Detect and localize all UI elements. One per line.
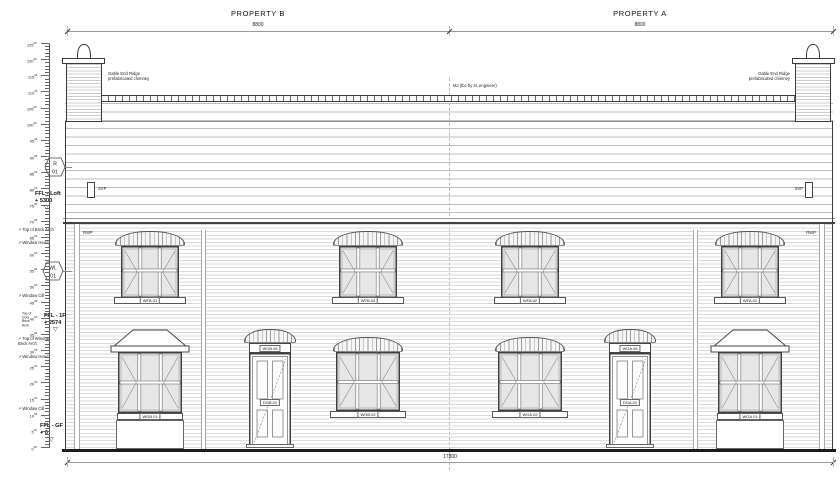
door-threshold bbox=[606, 444, 654, 448]
scale-tick bbox=[41, 415, 50, 416]
scale-tick bbox=[45, 111, 50, 112]
svp-label-left: SVP bbox=[98, 186, 106, 191]
scale-tick bbox=[45, 441, 50, 442]
dim-bottom-value: 17800 bbox=[400, 454, 500, 460]
chimney-note-left: Gable End Ridge prefabricated chimney bbox=[108, 71, 178, 81]
scale-label: 10000 bbox=[27, 122, 37, 128]
window-glazing bbox=[498, 352, 562, 411]
scale-label: 9000 bbox=[29, 154, 37, 160]
scale-tick bbox=[45, 260, 50, 261]
chimney-left bbox=[66, 63, 102, 122]
gf-window bbox=[498, 352, 562, 411]
scale-tick bbox=[45, 324, 50, 325]
svp-pipe-left bbox=[87, 182, 95, 198]
scale-label: 2000 bbox=[29, 380, 37, 386]
scale-tick bbox=[45, 428, 50, 429]
scale-label: 3500 bbox=[29, 332, 37, 338]
scale-tick bbox=[45, 66, 50, 67]
scale-tick bbox=[41, 188, 50, 189]
scale-tick bbox=[45, 53, 50, 54]
scale-tick bbox=[45, 234, 50, 235]
scale-tick bbox=[45, 444, 50, 445]
scale-tick bbox=[45, 211, 50, 212]
opening-label: WFA.01 bbox=[740, 297, 760, 304]
scale-tick bbox=[41, 59, 50, 60]
scale-tick bbox=[45, 263, 50, 264]
window-glazing bbox=[121, 246, 179, 298]
scale-tick bbox=[41, 399, 50, 400]
svg-text:WL: WL bbox=[49, 266, 57, 272]
scale-tick bbox=[45, 227, 50, 228]
scale-tick bbox=[45, 256, 50, 257]
scale-tick bbox=[45, 344, 50, 345]
ground-line bbox=[62, 449, 836, 452]
scale-tick bbox=[45, 379, 50, 380]
scale-label: 500 bbox=[32, 429, 37, 435]
dim-ext bbox=[833, 457, 834, 467]
dim-ext bbox=[67, 457, 68, 467]
scale-tick bbox=[45, 363, 50, 364]
scale-tick bbox=[45, 163, 50, 164]
tag-leader bbox=[64, 167, 72, 168]
scale-tick bbox=[45, 127, 50, 128]
svg-text:01: 01 bbox=[50, 274, 56, 280]
window-glazing bbox=[721, 246, 779, 298]
scale-label: 6000 bbox=[29, 251, 37, 257]
bay-apron-panel bbox=[716, 420, 784, 449]
ff-window bbox=[721, 246, 779, 298]
scale-tick bbox=[45, 243, 50, 244]
scale-tick bbox=[41, 382, 50, 383]
door-threshold bbox=[246, 444, 294, 448]
scale-tick bbox=[45, 386, 50, 387]
scale-tick bbox=[45, 295, 50, 296]
scale-tick bbox=[41, 237, 50, 238]
scale-tick bbox=[45, 289, 50, 290]
vertical-scale-bar: 1250012000115001100010500100009500900085… bbox=[18, 43, 50, 449]
scale-tick bbox=[45, 182, 50, 183]
scale-tick bbox=[45, 218, 50, 219]
scale-tick bbox=[45, 101, 50, 102]
scale-tick bbox=[45, 369, 50, 370]
scale-tick bbox=[45, 402, 50, 403]
scale-tick bbox=[45, 79, 50, 80]
scale-tick bbox=[45, 72, 50, 73]
scale-tick bbox=[41, 431, 50, 432]
scale-tick bbox=[45, 56, 50, 57]
svg-text:01: 01 bbox=[52, 170, 58, 176]
scale-tick bbox=[45, 224, 50, 225]
tag-leader bbox=[62, 271, 72, 272]
window-glazing bbox=[336, 352, 400, 411]
opening-label: WGB.02 bbox=[357, 411, 378, 418]
scale-tick bbox=[45, 424, 50, 425]
scale-tick bbox=[45, 166, 50, 167]
scale-tick bbox=[45, 437, 50, 438]
scale-tick bbox=[45, 331, 50, 332]
scale-tick bbox=[45, 85, 50, 86]
scale-label: 000 bbox=[32, 445, 37, 451]
scale-tick bbox=[45, 298, 50, 299]
bay-canopy bbox=[110, 327, 190, 353]
property-a-title: PROPERTY A bbox=[560, 9, 720, 18]
scale-tick bbox=[41, 253, 50, 254]
scale-tick bbox=[45, 169, 50, 170]
scale-tick bbox=[45, 327, 50, 328]
svg-text:R: R bbox=[53, 162, 57, 168]
ffl-1f-marker-icon: ▽ bbox=[53, 327, 58, 333]
scale-tick bbox=[45, 159, 50, 160]
scale-tick bbox=[45, 146, 50, 147]
scale-tick bbox=[45, 98, 50, 99]
opening-label: WGA.02 bbox=[519, 411, 540, 418]
roof-band-line bbox=[65, 121, 833, 122]
scale-tick bbox=[45, 198, 50, 199]
rwp-label-left: RWP bbox=[83, 230, 93, 235]
scale-tick bbox=[41, 156, 50, 157]
scale-tick bbox=[45, 185, 50, 186]
scale-tick bbox=[45, 266, 50, 267]
elevation-drawing: PROPERTY B PROPERTY A 8800 8800 MJ (tbc … bbox=[0, 0, 840, 480]
bay-canopy bbox=[710, 327, 790, 353]
scale-tick bbox=[45, 88, 50, 89]
scale-tick bbox=[45, 279, 50, 280]
ff-window bbox=[121, 246, 179, 298]
scale-tick bbox=[45, 347, 50, 348]
downpipe-mid-left bbox=[201, 230, 206, 450]
scale-tick bbox=[45, 104, 50, 105]
scale-tick bbox=[45, 376, 50, 377]
opening-label: WGA.01 bbox=[739, 413, 760, 420]
scale-tick bbox=[45, 276, 50, 277]
scale-label: 11000 bbox=[27, 89, 37, 95]
scale-label: 8500 bbox=[29, 170, 37, 176]
opening-label: WFB.02 bbox=[358, 297, 378, 304]
scale-tick bbox=[45, 192, 50, 193]
scale-tick bbox=[45, 114, 50, 115]
scale-label: 5500 bbox=[29, 267, 37, 273]
scale-tick bbox=[45, 282, 50, 283]
scale-tick bbox=[41, 75, 50, 76]
scale-tick bbox=[45, 130, 50, 131]
scale-tick bbox=[45, 305, 50, 306]
scale-tick bbox=[45, 117, 50, 118]
scale-tick bbox=[45, 95, 50, 96]
scale-tick bbox=[41, 124, 50, 125]
opening-label: WGA.05 bbox=[619, 345, 640, 352]
scale-tick bbox=[41, 91, 50, 92]
scale-tick bbox=[45, 201, 50, 202]
scale-tick bbox=[45, 314, 50, 315]
scale-tick bbox=[45, 272, 50, 273]
scale-tick bbox=[45, 321, 50, 322]
scale-tick bbox=[41, 269, 50, 270]
scale-label: 7000 bbox=[29, 219, 37, 225]
scale-label: 4500 bbox=[29, 299, 37, 305]
rwp-downpipe-right bbox=[819, 224, 825, 450]
scale-label: 11500 bbox=[27, 73, 37, 79]
scale-tick bbox=[41, 350, 50, 351]
scale-tick bbox=[45, 389, 50, 390]
bay-canopy-roof bbox=[710, 327, 790, 353]
window-glazing bbox=[501, 246, 559, 298]
scale-label: 9500 bbox=[29, 138, 37, 144]
dim-bottom-line bbox=[67, 462, 833, 463]
scale-tick bbox=[45, 353, 50, 354]
bay-canopy-roof bbox=[110, 327, 190, 353]
scale-tick bbox=[45, 250, 50, 251]
scale-tick bbox=[41, 221, 50, 222]
scale-tick bbox=[41, 43, 50, 44]
window-glazing bbox=[718, 352, 782, 413]
scale-tick bbox=[41, 108, 50, 109]
scale-tick bbox=[45, 373, 50, 374]
bay-window bbox=[718, 352, 782, 413]
window-glazing bbox=[339, 246, 397, 298]
scale-tick bbox=[45, 69, 50, 70]
scale-tick bbox=[45, 214, 50, 215]
chimney-right bbox=[795, 63, 831, 122]
scale-label: 7500 bbox=[29, 202, 37, 208]
scale-tick bbox=[45, 408, 50, 409]
scale-tick bbox=[45, 153, 50, 154]
scale-label: 4000 bbox=[29, 315, 37, 321]
scale-tick bbox=[45, 405, 50, 406]
scale-tick bbox=[45, 179, 50, 180]
property-b-title: PROPERTY B bbox=[178, 9, 338, 18]
chimney-pot-right bbox=[806, 44, 820, 59]
downpipe-mid-right bbox=[693, 230, 698, 450]
svp-label-right: SVP bbox=[768, 186, 803, 191]
scale-tick bbox=[45, 176, 50, 177]
scale-tick bbox=[41, 205, 50, 206]
scale-tick bbox=[45, 434, 50, 435]
gf-window bbox=[336, 352, 400, 411]
scale-tick bbox=[41, 302, 50, 303]
scale-tick bbox=[45, 247, 50, 248]
scale-tick bbox=[45, 137, 50, 138]
bay-window bbox=[118, 352, 182, 413]
rwp-downpipe-left bbox=[74, 224, 80, 450]
svp-pipe-right bbox=[805, 182, 813, 198]
scale-tick bbox=[45, 49, 50, 50]
scale-tick bbox=[41, 366, 50, 367]
scale-tick bbox=[45, 195, 50, 196]
scale-tick bbox=[45, 121, 50, 122]
scale-tick bbox=[45, 308, 50, 309]
scale-tick bbox=[41, 140, 50, 141]
opening-label: WGB.05 bbox=[259, 345, 280, 352]
scale-tick bbox=[45, 143, 50, 144]
scale-tick bbox=[45, 418, 50, 419]
chimney-pot-left bbox=[77, 44, 91, 59]
opening-label: WFB.01 bbox=[140, 297, 160, 304]
scale-tick bbox=[45, 340, 50, 341]
scale-tick bbox=[45, 392, 50, 393]
scale-label: 6500 bbox=[29, 235, 37, 241]
scale-tick bbox=[45, 46, 50, 47]
ff-window bbox=[339, 246, 397, 298]
dim-top-left-value: 8800 bbox=[208, 22, 308, 28]
scale-tick bbox=[45, 230, 50, 231]
scale-tick bbox=[45, 337, 50, 338]
scale-label: 3000 bbox=[29, 348, 37, 354]
scale-tick bbox=[45, 360, 50, 361]
scale-label: 12000 bbox=[27, 57, 37, 63]
opening-label: DGB.01 bbox=[260, 399, 280, 406]
scale-tick bbox=[41, 334, 50, 335]
scale-tick bbox=[45, 208, 50, 209]
scale-tick bbox=[41, 172, 50, 173]
scale-label: 12500 bbox=[27, 41, 37, 47]
scale-label: 5000 bbox=[29, 283, 37, 289]
scale-tick bbox=[45, 357, 50, 358]
scale-tick bbox=[45, 311, 50, 312]
ff-window bbox=[501, 246, 559, 298]
scale-tick bbox=[45, 421, 50, 422]
window-glazing bbox=[118, 352, 182, 413]
scale-label: 1500 bbox=[29, 396, 37, 402]
opening-label: WGB.01 bbox=[139, 413, 160, 420]
ridge-tiles bbox=[101, 95, 797, 102]
scale-tick bbox=[41, 447, 50, 448]
scale-tick bbox=[45, 82, 50, 83]
scale-tick bbox=[45, 150, 50, 151]
scale-label: 2500 bbox=[29, 364, 37, 370]
scale-label: 1000 bbox=[29, 412, 37, 418]
dim-top-right-value: 8800 bbox=[590, 22, 690, 28]
rwp-label-right: RWP bbox=[782, 230, 816, 235]
scale-label: 10500 bbox=[27, 105, 37, 111]
wall-edge-right bbox=[832, 121, 833, 450]
scale-tick bbox=[45, 62, 50, 63]
opening-label: DGA.01 bbox=[620, 399, 640, 406]
movement-joint-note: MJ (tbc by st. engineer) bbox=[453, 83, 497, 88]
chimney-note-right: Gable End Ridge prefabricated chimney bbox=[720, 71, 790, 81]
opening-label: WFA.02 bbox=[520, 297, 540, 304]
scale-tick bbox=[45, 292, 50, 293]
scale-tick bbox=[45, 395, 50, 396]
scale-tick bbox=[41, 285, 50, 286]
scale-tick bbox=[45, 240, 50, 241]
scale-label: 8000 bbox=[29, 186, 37, 192]
bay-apron-panel bbox=[116, 420, 184, 449]
scale-tick bbox=[45, 411, 50, 412]
scale-tick bbox=[45, 133, 50, 134]
scale-tick bbox=[41, 318, 50, 319]
